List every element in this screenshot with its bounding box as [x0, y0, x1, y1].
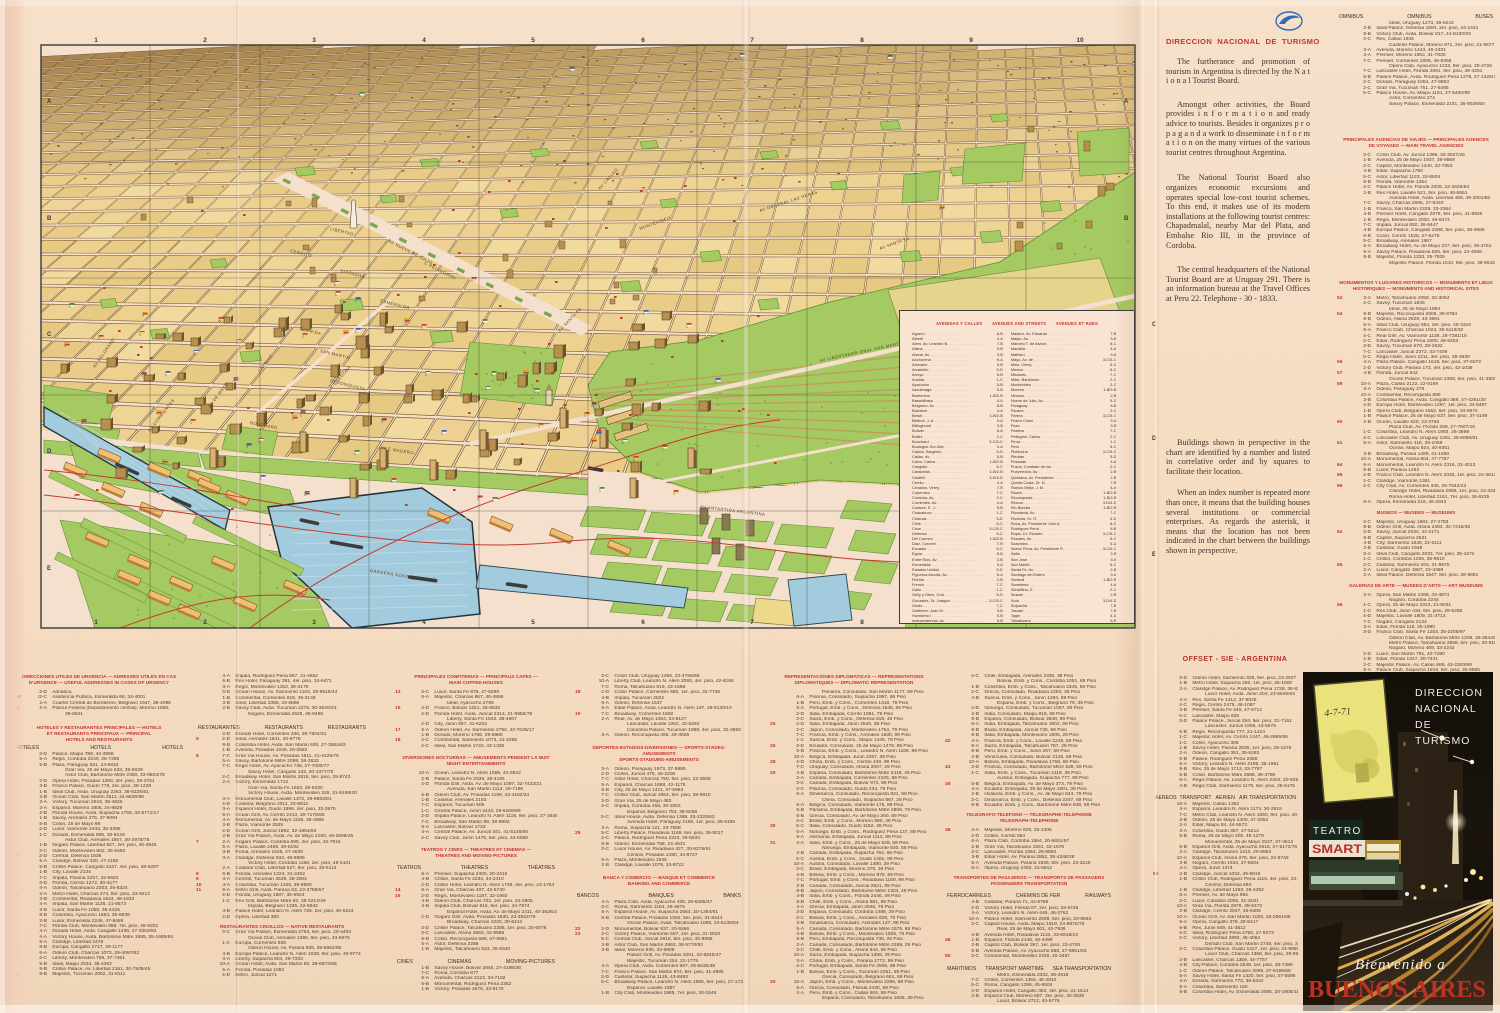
svg-text:E: E — [47, 566, 51, 572]
svg-text:8: 8 — [860, 619, 864, 626]
svg-text:2: 2 — [203, 619, 207, 626]
svg-text:10: 10 — [1076, 37, 1084, 44]
svg-text:5: 5 — [531, 37, 535, 44]
svg-text:4: 4 — [422, 37, 426, 44]
svg-text:4-7-71: 4-7-71 — [1324, 706, 1352, 719]
svg-text:C: C — [47, 332, 52, 338]
svg-text:9: 9 — [969, 37, 973, 44]
svg-text:A: A — [47, 99, 52, 105]
svg-text:4: 4 — [422, 619, 426, 626]
svg-text:2: 2 — [203, 37, 207, 44]
svg-text:TEATRO: TEATRO — [1313, 826, 1362, 837]
svg-text:6: 6 — [641, 37, 645, 44]
svg-text:DIRECCION: DIRECCION — [1415, 687, 1483, 699]
svg-text:1: 1 — [94, 37, 98, 44]
svg-text:B: B — [47, 216, 52, 222]
svg-text:SMART: SMART — [1312, 842, 1363, 856]
svg-text:BUENOS AIRES: BUENOS AIRES — [1308, 977, 1486, 1003]
svg-text:5: 5 — [531, 619, 535, 626]
svg-text:3: 3 — [312, 619, 316, 626]
svg-text:DE: DE — [1415, 719, 1432, 731]
svg-text:6: 6 — [641, 619, 645, 626]
svg-text:3: 3 — [312, 37, 316, 44]
svg-text:TURISMO: TURISMO — [1415, 735, 1470, 747]
svg-text:7: 7 — [750, 619, 754, 626]
svg-text:1: 1 — [94, 619, 98, 626]
svg-text:D: D — [47, 449, 52, 455]
svg-text:Bienvenido a: Bienvenido a — [1355, 957, 1446, 973]
svg-text:NACIONAL: NACIONAL — [1415, 703, 1477, 715]
svg-text:8: 8 — [860, 37, 864, 44]
svg-text:7: 7 — [750, 37, 754, 44]
